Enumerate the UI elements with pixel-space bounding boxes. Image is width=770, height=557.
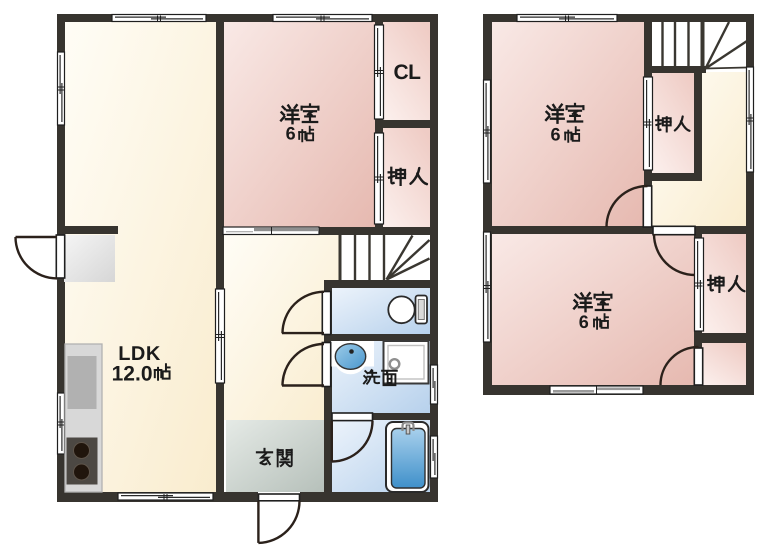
- svg-text:6: 6: [579, 312, 589, 332]
- svg-text:LDK: LDK: [118, 343, 161, 365]
- svg-text:6: 6: [286, 124, 296, 144]
- svg-text:6: 6: [550, 125, 560, 145]
- svg-text:12.0: 12.0: [112, 363, 153, 386]
- svg-text:CL: CL: [394, 61, 422, 84]
